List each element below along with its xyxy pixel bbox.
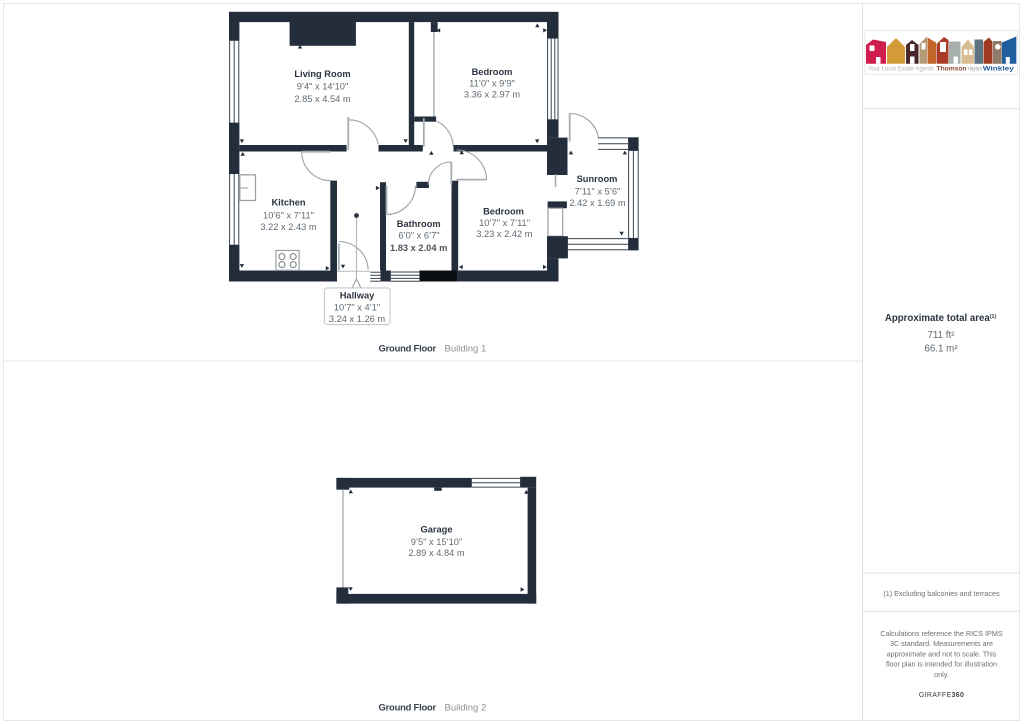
svg-text:Living Room: Living Room — [294, 69, 350, 79]
svg-text:3.36 x 2.97 m: 3.36 x 2.97 m — [464, 90, 521, 100]
svg-text:10’7" x 7’11": 10’7" x 7’11" — [479, 218, 530, 228]
svg-text:9’5" x 15’10": 9’5" x 15’10" — [411, 537, 463, 547]
svg-text:Hallway: Hallway — [340, 291, 375, 301]
svg-text:3.24 x 1.26 m: 3.24 x 1.26 m — [329, 314, 386, 324]
svg-text:3.23 x 2.42 m: 3.23 x 2.42 m — [476, 229, 533, 239]
svg-text:11’0" x 9’9": 11’0" x 9’9" — [469, 79, 515, 89]
svg-text:6’0" x 6’7": 6’0" x 6’7" — [398, 231, 439, 241]
svg-text:Thomson: Thomson — [937, 65, 967, 72]
svg-text:Your Local Estate Agents: Your Local Estate Agents — [868, 65, 935, 72]
svg-text:Winkley: Winkley — [983, 65, 1014, 72]
svg-text:Calculations reference the RIC: Calculations reference the RICS IPMS — [880, 629, 1002, 638]
svg-text:711 ft²: 711 ft² — [927, 330, 955, 341]
svg-text:7’11" x 5’6": 7’11" x 5’6" — [575, 187, 621, 197]
svg-text:Approximate total area(1): Approximate total area(1) — [885, 313, 997, 324]
svg-text:66.1 m²: 66.1 m² — [924, 344, 958, 355]
svg-text:Sunroom: Sunroom — [577, 174, 618, 184]
svg-text:Hayton: Hayton — [968, 65, 983, 72]
svg-text:2.42 x 1.69 m: 2.42 x 1.69 m — [569, 198, 626, 208]
svg-text:(1) Excluding balconies and te: (1) Excluding balconies and terraces — [883, 589, 1000, 598]
svg-text:GIRAFFE360: GIRAFFE360 — [919, 692, 964, 699]
svg-text:10’6" x 7’11": 10’6" x 7’11" — [263, 211, 314, 221]
svg-text:Ground Floor: Ground Floor — [379, 702, 437, 713]
svg-text:1.83 x 2.04 m: 1.83 x 2.04 m — [390, 243, 447, 253]
svg-text:2.89 x 4.84 m: 2.89 x 4.84 m — [408, 548, 465, 558]
svg-text:10’7" x 4’1": 10’7" x 4’1" — [334, 303, 380, 313]
svg-text:Ground Floor: Ground Floor — [379, 343, 437, 354]
svg-text:only.: only. — [934, 670, 949, 679]
svg-text:Kitchen: Kitchen — [271, 198, 305, 208]
svg-text:Building 2: Building 2 — [445, 703, 487, 714]
svg-text:floor plan is intended for ill: floor plan is intended for illustration — [886, 660, 997, 669]
svg-text:Building 1: Building 1 — [445, 344, 487, 355]
svg-text:Bedroom: Bedroom — [472, 67, 513, 77]
svg-text:3C standard. Measurements are: 3C standard. Measurements are — [890, 639, 993, 648]
svg-text:9’4" x 14’10": 9’4" x 14’10" — [297, 82, 349, 92]
svg-text:Bedroom: Bedroom — [483, 207, 524, 217]
svg-text:Bathroom: Bathroom — [397, 219, 441, 229]
svg-text:approximate and not to scale.: approximate and not to scale. This — [887, 649, 997, 658]
svg-text:2.85 x 4.54 m: 2.85 x 4.54 m — [294, 94, 351, 104]
svg-text:3.22 x 2.43 m: 3.22 x 2.43 m — [260, 222, 317, 232]
svg-text:Garage: Garage — [420, 525, 452, 535]
